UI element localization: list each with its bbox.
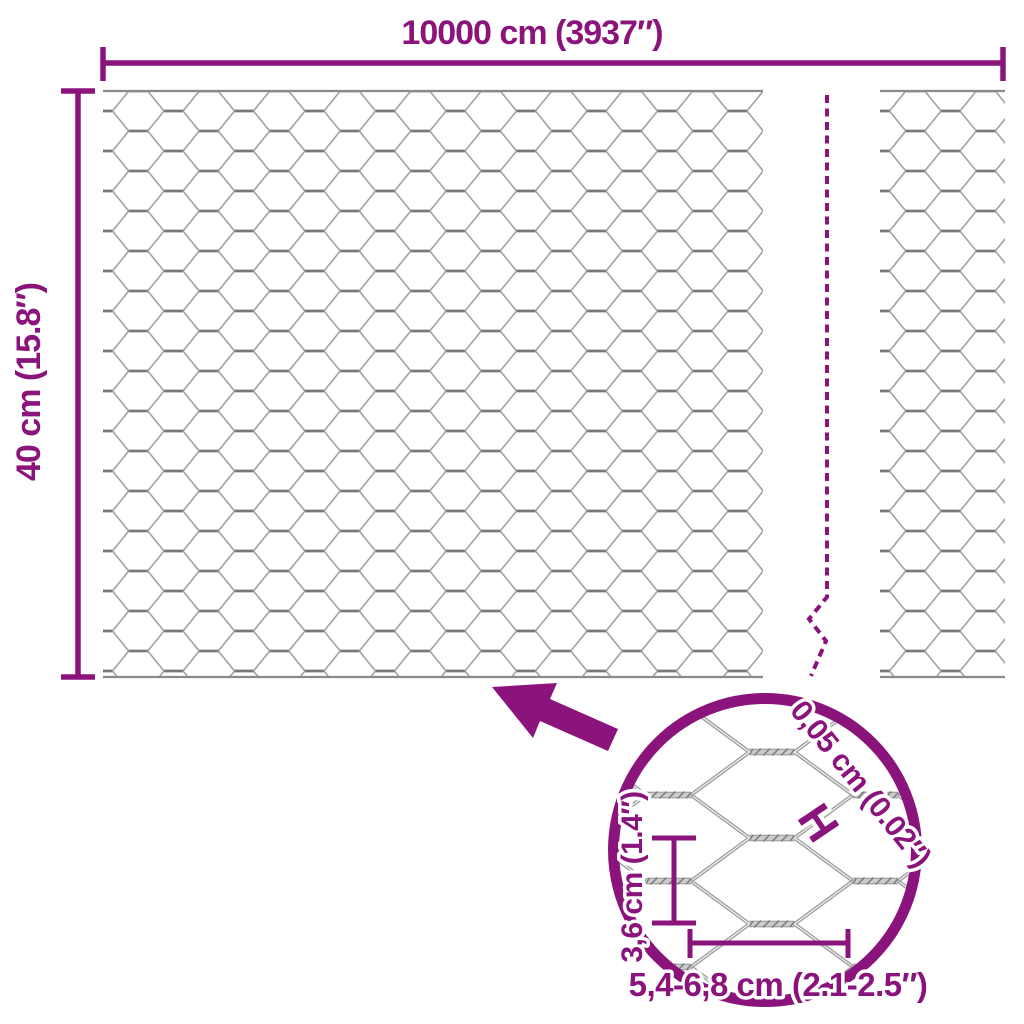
mesh-height-label: 3,6 cm (1.4″) <box>616 791 649 962</box>
detail-lens: H 0,05 cm (0.02″) 3,6 cm (1.4″) 5,4-6,8 … <box>608 688 937 1012</box>
break-line <box>809 95 827 676</box>
arrow-icon <box>492 683 618 751</box>
mesh-panel-left <box>103 91 763 677</box>
width-dimension: 10000 cm (3937″) <box>103 14 1003 81</box>
diagram-canvas: 10000 cm (3937″) 40 cm (15.8″) H 0,05 cm… <box>0 0 1024 1024</box>
mesh-width-label: 5,4-6,8 cm (2.1-2.5″) <box>629 966 928 1003</box>
magnified-mesh <box>608 688 922 1012</box>
height-dimension: 40 cm (15.8″) <box>10 91 95 677</box>
mesh-panel-right <box>880 91 1005 677</box>
width-dimension-label: 10000 cm (3937″) <box>401 14 662 52</box>
height-dimension-label: 40 cm (15.8″) <box>10 283 48 481</box>
product-dimension-diagram: 10000 cm (3937″) 40 cm (15.8″) H 0,05 cm… <box>0 0 1024 1024</box>
